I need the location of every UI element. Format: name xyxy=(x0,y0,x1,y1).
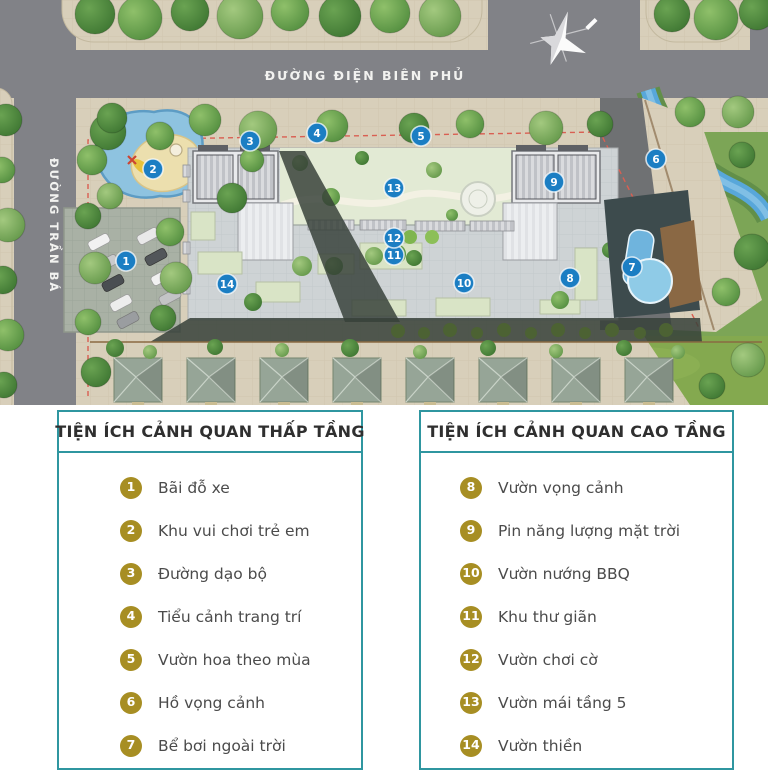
legend-item-1: 1Bãi đỗ xe xyxy=(120,466,361,509)
legend-list-high-rise: 8Vườn vọng cảnh9Pin năng lượng mặt trời1… xyxy=(421,453,732,767)
legend-item-label: Vườn chơi cờ xyxy=(498,651,598,669)
svg-text:8: 8 xyxy=(566,273,573,285)
site-plan-page: ĐƯỜNG ĐIỆN BIÊN PHỦ ĐƯỜNG TRẦN BÁ 123456… xyxy=(0,0,768,783)
legend-item-label: Vườn nướng BBQ xyxy=(498,565,630,583)
svg-text:2: 2 xyxy=(149,164,156,176)
legend-item-8: 8Vườn vọng cảnh xyxy=(460,466,732,509)
legend-item-6: 6Hồ vọng cảnh xyxy=(120,681,361,724)
street-label-tran-ba: ĐƯỜNG TRẦN BÁ xyxy=(47,158,64,293)
map-marker-12[interactable]: 12 xyxy=(384,228,404,248)
legend-item-number-badge: 12 xyxy=(460,649,482,671)
svg-text:10: 10 xyxy=(457,278,472,290)
svg-text:14: 14 xyxy=(220,279,235,291)
legend-item-number-badge: 4 xyxy=(120,606,142,628)
legend-item-label: Hồ vọng cảnh xyxy=(158,694,265,712)
legend-list-low-rise: 1Bãi đỗ xe2Khu vui chơi trẻ em3Đường dạo… xyxy=(59,453,361,767)
legend-item-number-badge: 8 xyxy=(460,477,482,499)
legend-item-label: Pin năng lượng mặt trời xyxy=(498,522,680,540)
outdoor-pool-area xyxy=(604,190,702,318)
svg-text:1: 1 xyxy=(122,256,129,268)
legend-panel-high-rise: TIỆN ÍCH CẢNH QUAN CAO TẦNG 8Vườn vọng c… xyxy=(419,410,734,770)
map-marker-7[interactable]: 7 xyxy=(622,257,642,277)
map-marker-13[interactable]: 13 xyxy=(384,178,404,198)
legend-item-label: Đường dạo bộ xyxy=(158,565,267,583)
map-marker-14[interactable]: 14 xyxy=(217,274,237,294)
master-plan-map: ĐƯỜNG ĐIỆN BIÊN PHỦ ĐƯỜNG TRẦN BÁ 123456… xyxy=(0,0,768,405)
svg-text:7: 7 xyxy=(628,262,635,274)
legend-item-number-badge: 9 xyxy=(460,520,482,542)
legend-item-number-badge: 5 xyxy=(120,649,142,671)
legend-title-high-rise: TIỆN ÍCH CẢNH QUAN CAO TẦNG xyxy=(421,412,732,453)
legend-item-number-badge: 13 xyxy=(460,692,482,714)
legend-item-4: 4Tiểu cảnh trang trí xyxy=(120,595,361,638)
legend-item-label: Bãi đỗ xe xyxy=(158,479,230,497)
legend-item-number-badge: 7 xyxy=(120,735,142,757)
map-marker-10[interactable]: 10 xyxy=(454,273,474,293)
map-marker-8[interactable]: 8 xyxy=(560,268,580,288)
legend-title-low-rise: TIỆN ÍCH CẢNH QUAN THẤP TẦNG xyxy=(59,412,361,453)
map-marker-4[interactable]: 4 xyxy=(307,123,327,143)
tower-roof-east-wing xyxy=(503,203,557,260)
legend-item-label: Khu vui chơi trẻ em xyxy=(158,522,310,540)
map-marker-3[interactable]: 3 xyxy=(240,131,260,151)
svg-text:12: 12 xyxy=(387,233,402,245)
map-marker-5[interactable]: 5 xyxy=(411,126,431,146)
tower-roof-west-wing xyxy=(238,203,293,260)
legend-item-label: Vườn hoa theo mùa xyxy=(158,651,311,669)
map-marker-6[interactable]: 6 xyxy=(646,149,666,169)
svg-text:5: 5 xyxy=(417,131,424,143)
legend-item-number-badge: 2 xyxy=(120,520,142,542)
map-marker-1[interactable]: 1 xyxy=(116,251,136,271)
legend-item-7: 7Bể bơi ngoài trời xyxy=(120,724,361,767)
legend-item-number-badge: 6 xyxy=(120,692,142,714)
svg-text:13: 13 xyxy=(387,183,402,195)
legend-item-label: Vườn thiền xyxy=(498,737,582,755)
legend-item-13: 13Vườn mái tầng 5 xyxy=(460,681,732,724)
legend-item-number-badge: 11 xyxy=(460,606,482,628)
legend-item-11: 11Khu thư giãn xyxy=(460,595,732,638)
legend-item-label: Vườn mái tầng 5 xyxy=(498,694,627,712)
svg-text:9: 9 xyxy=(550,177,557,189)
legend-item-number-badge: 14 xyxy=(460,735,482,757)
svg-text:6: 6 xyxy=(652,154,659,166)
svg-text:3: 3 xyxy=(246,136,253,148)
legend-item-3: 3Đường dạo bộ xyxy=(120,552,361,595)
legend-panel-low-rise: TIỆN ÍCH CẢNH QUAN THẤP TẦNG 1Bãi đỗ xe2… xyxy=(57,410,363,770)
map-marker-2[interactable]: 2 xyxy=(143,159,163,179)
legend-item-label: Tiểu cảnh trang trí xyxy=(158,608,301,626)
legend-item-5: 5Vườn hoa theo mùa xyxy=(120,638,361,681)
legend-item-label: Vườn vọng cảnh xyxy=(498,479,624,497)
legend-item-9: 9Pin năng lượng mặt trời xyxy=(460,509,732,552)
legend-item-number-badge: 1 xyxy=(120,477,142,499)
legend-item-label: Bể bơi ngoài trời xyxy=(158,737,286,755)
legend-item-label: Khu thư giãn xyxy=(498,608,597,626)
master-plan-svg: ĐƯỜNG ĐIỆN BIÊN PHỦ ĐƯỜNG TRẦN BÁ 123456… xyxy=(0,0,768,405)
legend-item-number-badge: 10 xyxy=(460,563,482,585)
legend-item-12: 12Vườn chơi cờ xyxy=(460,638,732,681)
legend-item-2: 2Khu vui chơi trẻ em xyxy=(120,509,361,552)
legend-item-14: 14Vườn thiền xyxy=(460,724,732,767)
map-marker-9[interactable]: 9 xyxy=(544,172,564,192)
legend-item-number-badge: 3 xyxy=(120,563,142,585)
svg-text:11: 11 xyxy=(387,250,402,262)
legend-item-10: 10Vườn nướng BBQ xyxy=(460,552,732,595)
svg-text:4: 4 xyxy=(313,128,320,140)
street-label-dien-bien-phu: ĐƯỜNG ĐIỆN BIÊN PHỦ xyxy=(265,67,466,83)
